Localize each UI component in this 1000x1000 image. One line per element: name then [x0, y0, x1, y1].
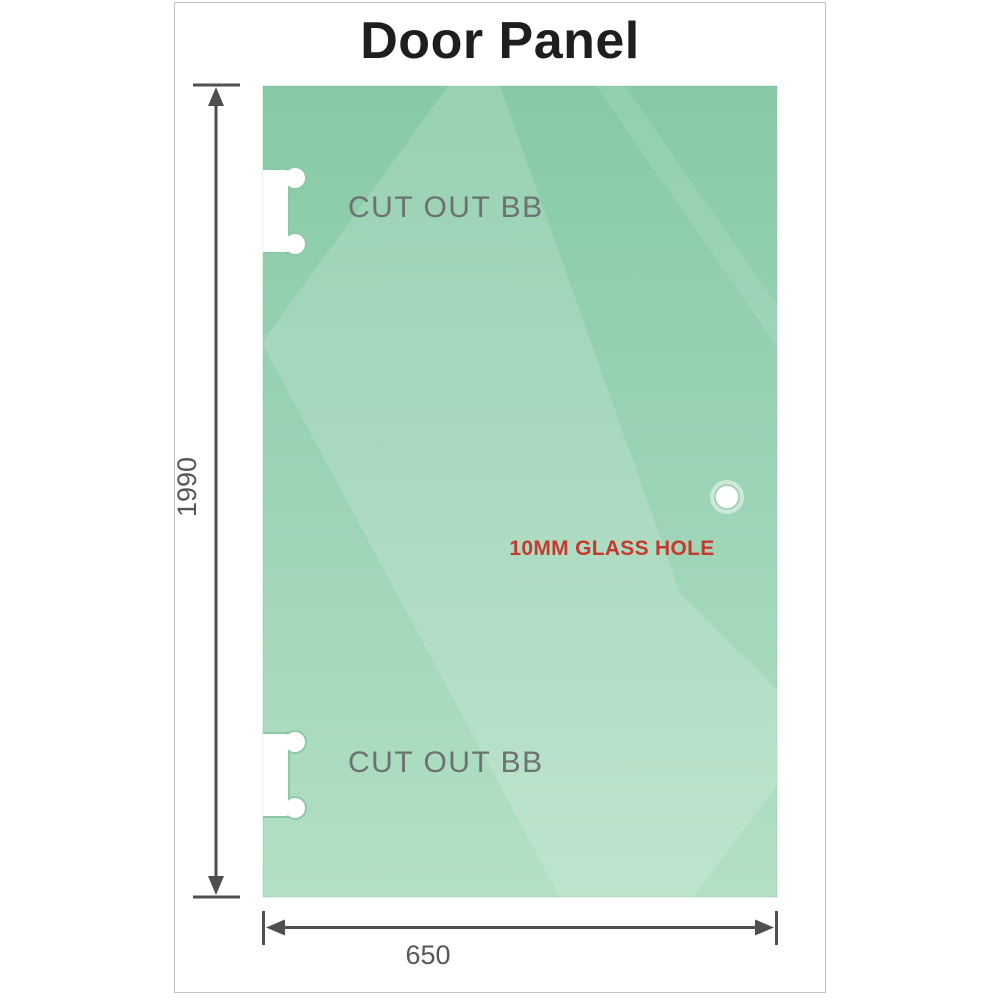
door-panel-diagram: Door Panel — [0, 0, 1000, 1000]
height-dimension-label: 1990 — [173, 457, 201, 517]
glass-hole — [710, 480, 744, 514]
cutout-label-bottom: CUT OUT BB — [348, 745, 544, 781]
width-dimension — [264, 911, 777, 945]
arrowhead-right-icon — [755, 920, 774, 936]
arrowhead-up-icon — [208, 87, 224, 106]
arrowhead-left-icon — [266, 920, 285, 936]
glass-hole-label: 10MM GLASS HOLE — [502, 536, 722, 562]
arrowhead-down-icon — [208, 876, 224, 895]
cutout-label-top: CUT OUT BB — [348, 190, 544, 226]
diagram-graphics — [0, 0, 1000, 1000]
glass-hole-circle — [715, 485, 739, 509]
width-dimension-label: 650 — [405, 941, 450, 969]
